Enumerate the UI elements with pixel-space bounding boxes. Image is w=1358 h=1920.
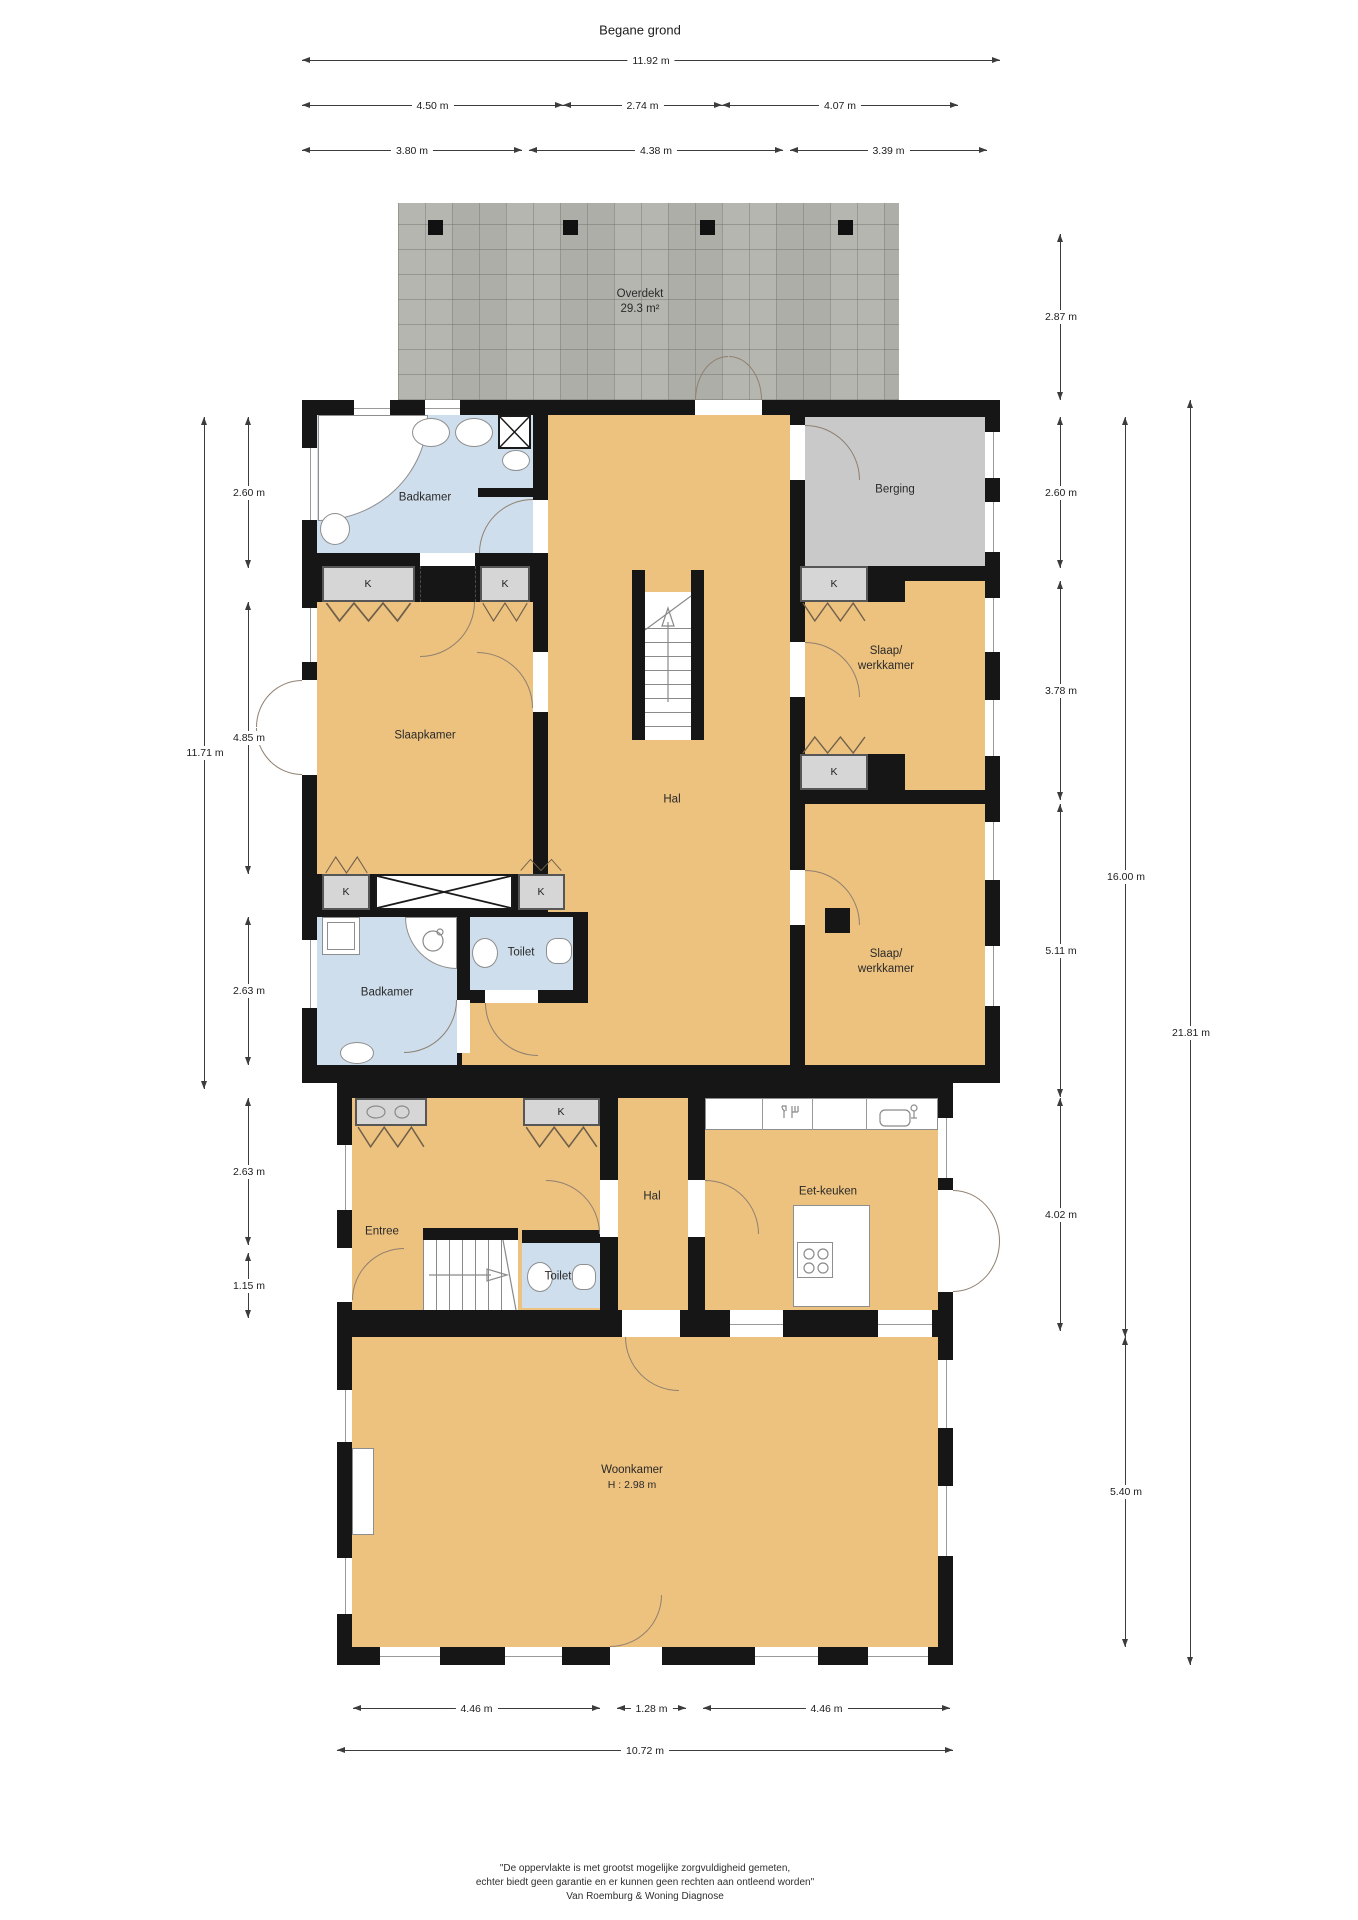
dim-bottom-c: 4.46 m	[703, 1708, 950, 1709]
door-opening	[790, 425, 805, 480]
washer-crossed-box	[498, 415, 531, 449]
room-label-toilet-beneden: Toilet	[545, 1270, 572, 1285]
window	[985, 700, 1000, 756]
window	[755, 1647, 818, 1665]
disclaimer: "De oppervlakte is met grootst mogelijke…	[476, 1862, 814, 1904]
wall-stub	[868, 754, 905, 790]
room-label-slaapkamer: Slaapkamer	[394, 729, 455, 744]
folding-door-icon	[802, 736, 866, 754]
room-label-badkamer-onder: Badkamer	[361, 986, 413, 1001]
closet-label: K	[557, 1106, 564, 1118]
folding-door-icon	[325, 856, 368, 874]
cooktop-burners	[797, 1242, 833, 1278]
door-opening	[600, 1180, 618, 1237]
door-opening	[337, 1248, 352, 1302]
front-door-opening	[695, 400, 762, 415]
closet-label: K	[501, 578, 508, 590]
counter-divider	[866, 1098, 867, 1130]
folding-door-icon	[357, 1126, 425, 1148]
door-opening	[533, 652, 548, 712]
window	[302, 608, 317, 662]
dim-left-b: 4.85 m	[248, 602, 249, 874]
window	[302, 940, 317, 1008]
room-label-woonkamer: WoonkamerH : 2.98 m	[601, 1463, 663, 1493]
sink	[455, 418, 493, 447]
garden-door-opening	[302, 680, 317, 775]
window	[985, 598, 1000, 652]
window	[985, 502, 1000, 552]
staircase-down	[423, 1240, 518, 1310]
closet-label: K	[830, 766, 837, 778]
pedestal-sink	[320, 513, 350, 545]
dim-right-d: 4.02 m	[1060, 1098, 1061, 1331]
room-label-slaapwerkkamer-1: Slaap/werkkamer	[858, 644, 914, 674]
closet-label: K	[364, 578, 371, 590]
folding-door-icon	[482, 602, 528, 622]
sink	[340, 1042, 374, 1064]
door-arc	[953, 1190, 1000, 1241]
dim-top-d: 3.80 m	[302, 150, 522, 151]
window	[938, 1118, 953, 1178]
sink	[412, 418, 450, 447]
wall-stub	[868, 566, 905, 602]
garden-door-opening	[938, 1190, 953, 1292]
opening-dashed-line	[420, 566, 421, 602]
room-label-hal-beneden: Hal	[643, 1190, 660, 1205]
counter-divider	[812, 1098, 813, 1130]
dim-left-c: 2.63 m	[248, 917, 249, 1065]
kitchen-sink-icon	[878, 1102, 922, 1128]
room-label-slaapwerkkamer-2: Slaap/werkkamer	[858, 947, 914, 977]
window	[868, 1647, 928, 1665]
dim-top-f: 3.39 m	[790, 150, 987, 151]
dim-top-total: 11.92 m	[302, 60, 1000, 61]
sink-circle	[420, 928, 446, 954]
stair-wall	[423, 1228, 518, 1240]
dim-right-woonkamer: 5.40 m	[1125, 1337, 1126, 1647]
wardrobe-crossed-box	[375, 874, 513, 910]
folding-door-icon	[525, 1126, 598, 1148]
window	[505, 1647, 562, 1665]
shower-tray-inner	[327, 922, 355, 950]
window	[938, 1360, 953, 1428]
door-opening	[420, 553, 475, 566]
door-opening	[457, 1000, 470, 1053]
window	[302, 448, 317, 520]
room-hal-boven-zuid	[588, 900, 790, 1065]
dim-bottom-total: 10.72 m	[337, 1750, 953, 1751]
dim-right-total: 21.81 m	[1190, 400, 1191, 1665]
room-label-badkamer-boven: Badkamer	[399, 491, 451, 506]
dim-right-sub: 16.00 m	[1125, 417, 1126, 1337]
dim-top-e: 4.38 m	[529, 150, 783, 151]
dim-right-c: 5.11 m	[1060, 804, 1061, 1097]
window	[380, 1647, 440, 1665]
fountain-sink	[572, 1264, 596, 1290]
folding-door-icon	[802, 602, 866, 622]
dishwasher-icon	[778, 1102, 802, 1126]
closet-label: K	[342, 886, 349, 898]
window	[938, 1486, 953, 1556]
wall-stub	[478, 488, 533, 497]
closet-label: K	[830, 578, 837, 590]
dim-top-b: 2.74 m	[563, 105, 722, 106]
staircase-up	[645, 592, 691, 740]
wall-toilet	[502, 450, 530, 471]
window	[425, 400, 460, 415]
floorplan-canvas: Begane grond 11.92 m 4.50 m 2.74 m 4.07 …	[0, 0, 1358, 1920]
window	[985, 432, 1000, 478]
canopy-post	[428, 220, 443, 235]
room-label-overdekt: Overdekt29.3 m²	[617, 287, 664, 317]
door-opening	[485, 990, 538, 1003]
dim-left-a: 2.60 m	[248, 417, 249, 568]
stair-rail	[632, 570, 645, 740]
folding-door-icon	[325, 602, 412, 622]
door-arc	[256, 680, 302, 727]
folding-door-icon	[520, 856, 562, 874]
dim-right-a: 2.60 m	[1060, 417, 1061, 568]
dim-left-d: 2.63 m	[248, 1098, 249, 1245]
window	[337, 1558, 352, 1614]
toilet	[472, 938, 498, 968]
window	[354, 400, 390, 415]
dim-left-total: 11.71 m	[204, 417, 205, 1089]
fireplace	[352, 1448, 374, 1535]
door-opening	[790, 642, 805, 697]
dim-top-c: 4.07 m	[722, 105, 958, 106]
room-slaapwerkkamer-2	[805, 804, 985, 1065]
canopy-post	[563, 220, 578, 235]
dim-top-a: 4.50 m	[302, 105, 563, 106]
door-opening	[688, 1180, 705, 1237]
window	[337, 1145, 352, 1210]
door-opening	[790, 870, 805, 925]
dim-right-b: 3.78 m	[1060, 581, 1061, 800]
passage-opening	[878, 1310, 932, 1337]
canopy-post	[700, 220, 715, 235]
window	[985, 822, 1000, 880]
canopy-post	[838, 220, 853, 235]
room-label-hal-boven: Hal	[663, 793, 680, 808]
dim-right-canopy: 2.87 m	[1060, 234, 1061, 400]
room-label-entree: Entree	[365, 1225, 399, 1240]
dim-bottom-a: 4.46 m	[353, 1708, 600, 1709]
room-label-toilet-boven: Toilet	[508, 946, 535, 961]
stove-block	[825, 908, 850, 933]
room-label-eetkeuken: Eet-keuken	[799, 1185, 857, 1200]
fountain-sink	[546, 938, 572, 964]
closet-label: K	[537, 886, 544, 898]
cabinet-sinks-icon	[362, 1103, 422, 1121]
room-label-berging: Berging	[875, 483, 915, 498]
window	[985, 946, 1000, 1006]
dim-bottom-b: 1.28 m	[617, 1708, 686, 1709]
page-title: Begane grond	[599, 23, 681, 38]
door-arc	[953, 1241, 1000, 1292]
counter-divider	[762, 1098, 763, 1130]
passage-opening	[730, 1310, 783, 1337]
dim-left-e: 1.15 m	[248, 1253, 249, 1318]
door-opening	[610, 1647, 662, 1665]
door-opening	[622, 1310, 680, 1337]
stair-rail	[691, 570, 704, 740]
opening-dashed-line	[475, 566, 476, 602]
window	[337, 1390, 352, 1442]
door-opening	[533, 500, 548, 553]
